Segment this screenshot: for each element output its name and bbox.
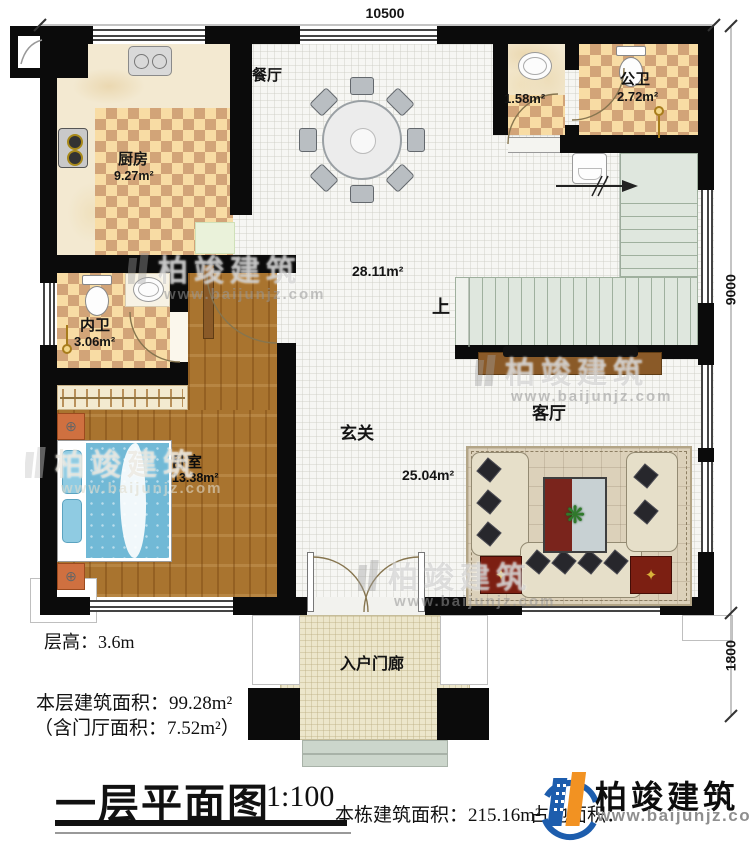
- room-area-bedroom: 13.38m²: [172, 472, 219, 486]
- room-area-foyer: 25.04m²: [402, 468, 454, 483]
- floor-plan-canvas: ⊕ ⊕ ✦ ✦ ❋: [0, 0, 750, 847]
- note-floor-height: 层高：3.6m: [44, 628, 135, 654]
- room-area-public-bath: 2.72m²: [617, 90, 658, 104]
- room-area-washroom: 1.58m²: [504, 92, 545, 106]
- room-label-living: 客厅: [532, 405, 566, 424]
- dimension-right-lower: 1800: [723, 626, 738, 686]
- room-label-private-bath: 内卫: [80, 318, 110, 335]
- brand-logo: 柏竣建筑 www.baijunjz.com: [503, 748, 748, 845]
- title-underline-thin: [55, 832, 351, 834]
- room-label-dining: 餐厅: [252, 68, 282, 85]
- room-area-hall: 28.11m²: [352, 264, 403, 279]
- room-label-foyer: 玄关: [340, 425, 374, 444]
- brand-logo-url: www.baijunjz.com: [597, 806, 750, 826]
- title-underline: [55, 820, 347, 826]
- room-label-public-bath: 公卫: [620, 72, 650, 89]
- room-label-porch: 入户门廊: [340, 656, 404, 674]
- room-label-kitchen: 厨房: [118, 152, 148, 169]
- note-floor-area: 本层建筑面积：99.28m²: [36, 688, 232, 715]
- note-foyer-area: （含门厅面积：7.52m²）: [34, 713, 240, 740]
- stairs-up-label: 上: [432, 298, 450, 318]
- dimension-right-upper: 9000: [723, 260, 738, 320]
- plan-scale: 1:100: [266, 780, 334, 814]
- room-label-bedroom: 卧室: [172, 455, 202, 472]
- dimension-top: 10500: [330, 6, 440, 21]
- room-area-private-bath: 3.06m²: [74, 335, 115, 349]
- room-area-kitchen: 9.27m²: [114, 170, 154, 184]
